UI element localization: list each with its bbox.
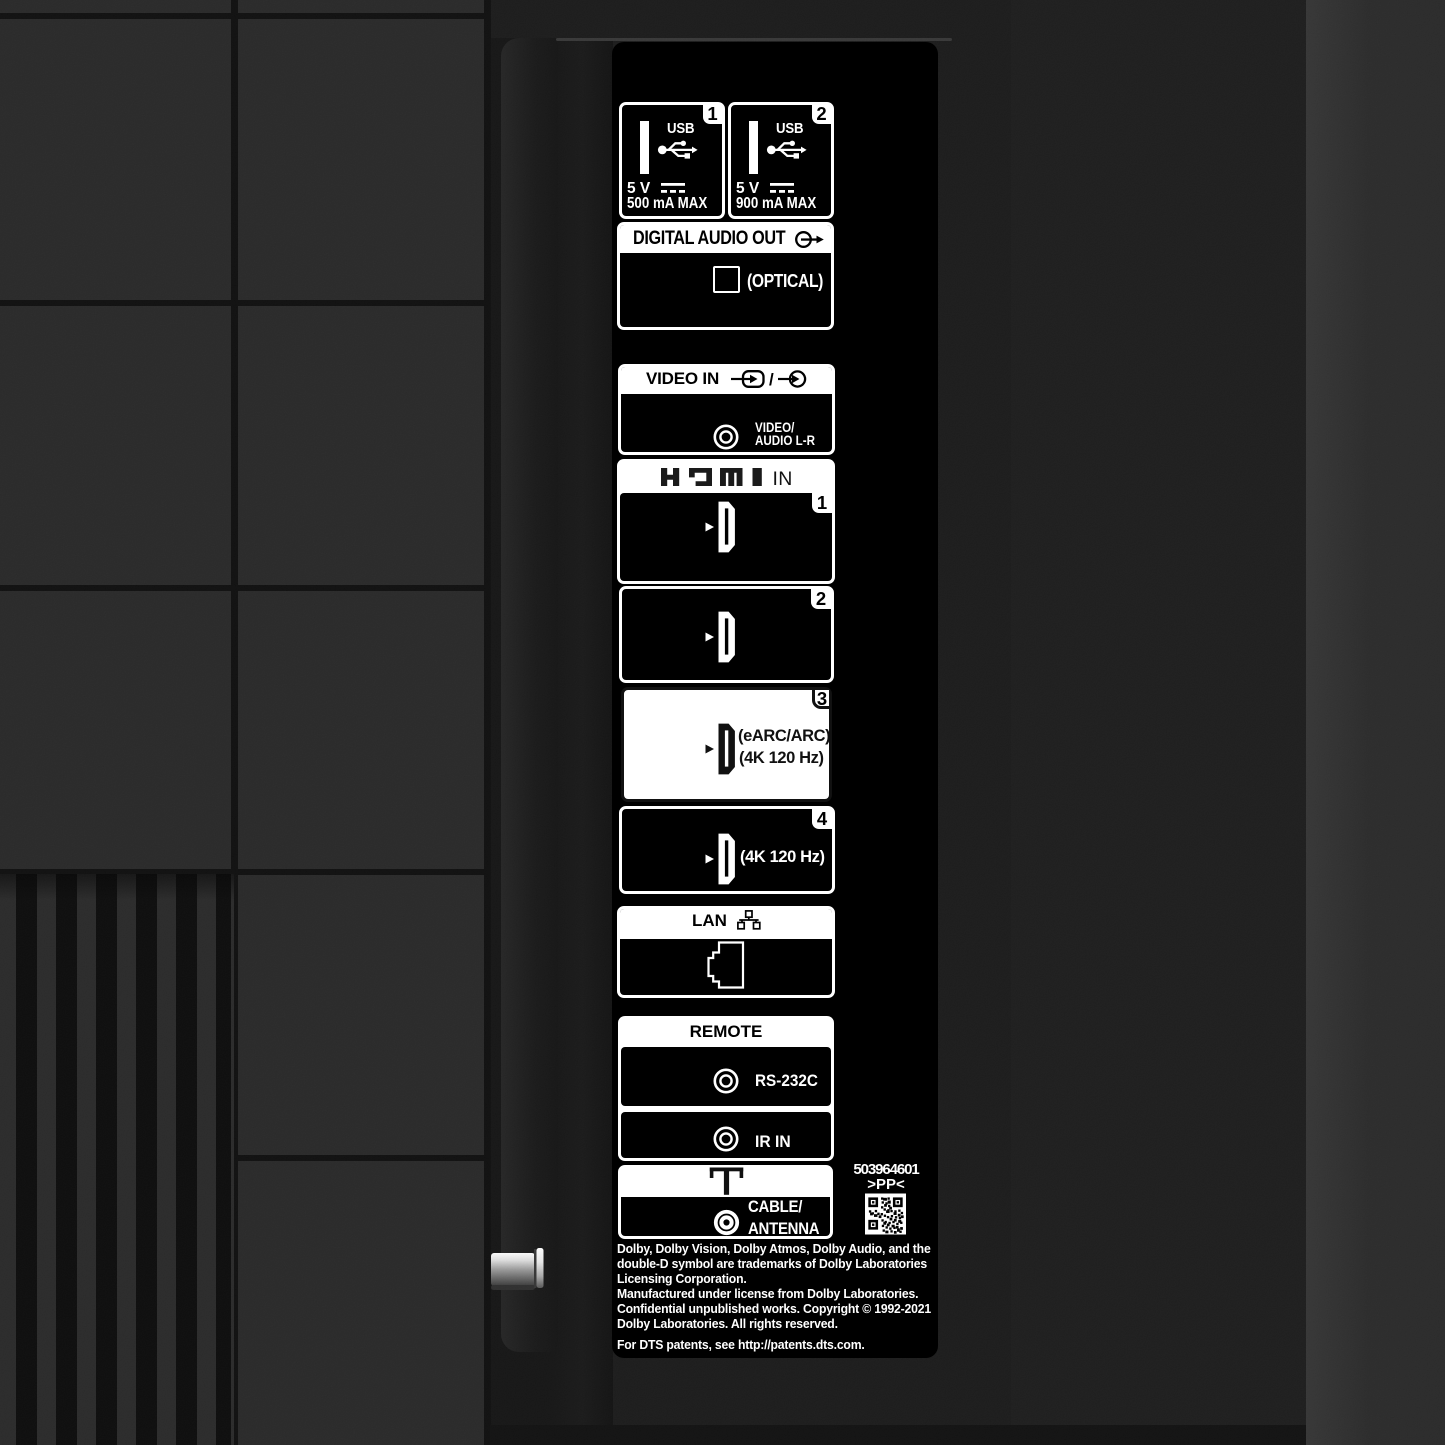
svg-text:/: / [769,370,774,388]
